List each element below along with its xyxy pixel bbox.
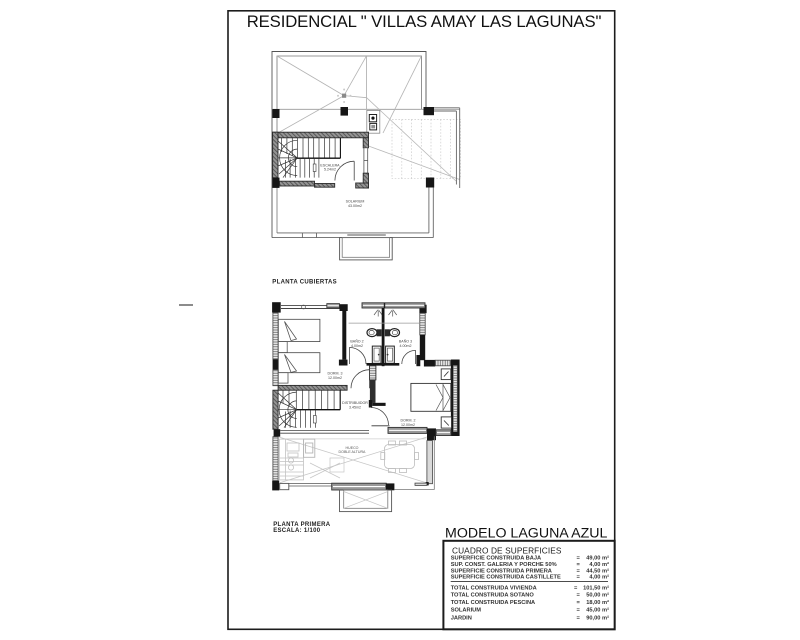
svg-text:4.00m2: 4.00m2 bbox=[351, 344, 363, 348]
svg-text:TOTAL CONSTRUIDA PESCINA: TOTAL CONSTRUIDA PESCINA bbox=[451, 600, 535, 606]
svg-text:TOTAL CONSTRUIDA VIVIENDA: TOTAL CONSTRUIDA VIVIENDA bbox=[451, 585, 537, 591]
svg-text:44,50 m²: 44,50 m² bbox=[586, 567, 609, 574]
svg-text:12.00m2: 12.00m2 bbox=[401, 423, 415, 427]
svg-text:3.45m2: 3.45m2 bbox=[349, 405, 361, 409]
svg-text:43.00m2: 43.00m2 bbox=[348, 204, 362, 208]
svg-text:JARDIN: JARDIN bbox=[451, 615, 472, 621]
svg-text:18,00 m²: 18,00 m² bbox=[586, 599, 609, 606]
svg-text:49,00 m²: 49,00 m² bbox=[586, 555, 609, 562]
svg-text:RESIDENCIAL " VILLAS AMAY LAS: RESIDENCIAL " VILLAS AMAY LAS LAGUNAS" bbox=[247, 12, 602, 31]
svg-text:90,00 m²: 90,00 m² bbox=[586, 614, 609, 621]
svg-text:MODELO LAGUNA AZUL: MODELO LAGUNA AZUL bbox=[445, 525, 608, 541]
svg-text:4,00 m²: 4,00 m² bbox=[589, 574, 609, 581]
svg-text:4,00 m²: 4,00 m² bbox=[589, 561, 609, 568]
svg-text:101,50 m²: 101,50 m² bbox=[583, 584, 609, 591]
svg-text:SUPERFICIE CONSTRUIDA PRIMERA: SUPERFICIE CONSTRUIDA PRIMERA bbox=[451, 568, 552, 574]
svg-text:45,00 m²: 45,00 m² bbox=[586, 607, 609, 614]
svg-text:4.00m2: 4.00m2 bbox=[400, 344, 412, 348]
svg-text:DOBLE ALTURA: DOBLE ALTURA bbox=[339, 450, 366, 454]
svg-text:12.00m2: 12.00m2 bbox=[328, 376, 342, 380]
svg-text:50,00 m²: 50,00 m² bbox=[586, 592, 609, 599]
svg-text:SUPERFICIE CONSTRUIDA CASTILLE: SUPERFICIE CONSTRUIDA CASTILLETE bbox=[451, 575, 561, 581]
svg-text:ESCALA: 1/100: ESCALA: 1/100 bbox=[273, 528, 321, 534]
svg-text:5.24m2: 5.24m2 bbox=[324, 168, 336, 172]
svg-text:SUP. CONST. GALERIA Y PORCHE 5: SUP. CONST. GALERIA Y PORCHE 50% bbox=[451, 562, 557, 568]
svg-text:SOLARIUM: SOLARIUM bbox=[451, 608, 482, 614]
svg-text:TOTAL CONSTRUIDA SOTANO: TOTAL CONSTRUIDA SOTANO bbox=[451, 593, 535, 599]
svg-text:PLANTA CUBIERTAS: PLANTA CUBIERTAS bbox=[272, 279, 337, 285]
svg-text:CUADRO DE SUPERFICIES: CUADRO DE SUPERFICIES bbox=[452, 546, 562, 556]
svg-text:SUPERFICIE CONSTRUIDA BAJA: SUPERFICIE CONSTRUIDA BAJA bbox=[451, 556, 541, 562]
